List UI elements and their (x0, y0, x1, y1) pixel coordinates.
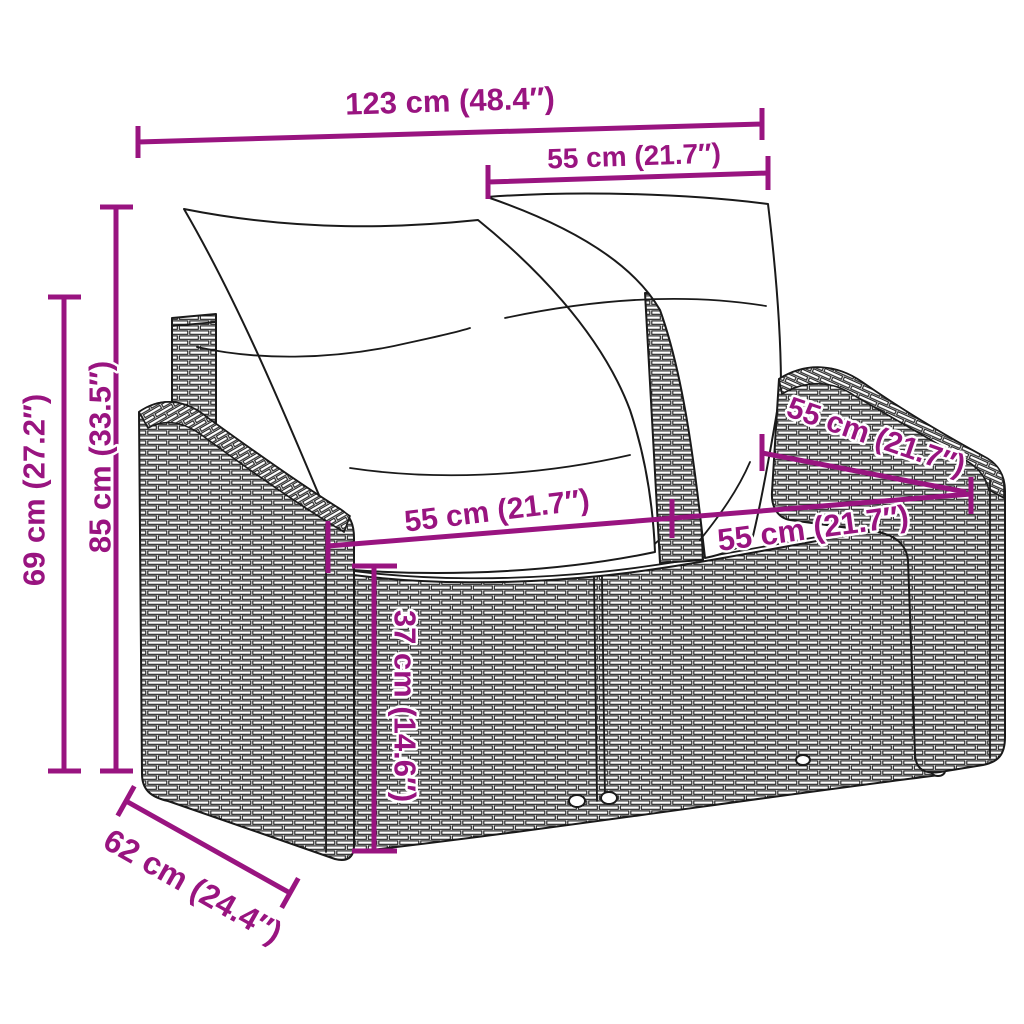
dim-armrest-height-label: 69 cm (27.2″) (17, 394, 52, 586)
sofa-dimension-drawing: 123 cm (48.4″) 55 cm (21.7″) 85 cm (33.5… (0, 0, 1024, 1024)
dimension-diagram: 123 cm (48.4″) 55 cm (21.7″) 85 cm (33.5… (0, 0, 1024, 1024)
dim-back-cushion-width-label: 55 cm (21.7″) (547, 137, 722, 174)
dim-armrest-height: 69 cm (27.2″) (17, 297, 82, 771)
dim-seat-height-label: 37 cm (14.6″) (388, 610, 423, 802)
dim-back-cushion-width: 55 cm (21.7″) (488, 137, 768, 199)
dim-total-height: 85 cm (33.5″) (83, 207, 134, 771)
dim-armrest-height-line (48, 297, 81, 771)
dim-total-width-label: 123 cm (48.4″) (345, 80, 556, 121)
dim-total-height-label: 85 cm (33.5″) (83, 361, 118, 553)
